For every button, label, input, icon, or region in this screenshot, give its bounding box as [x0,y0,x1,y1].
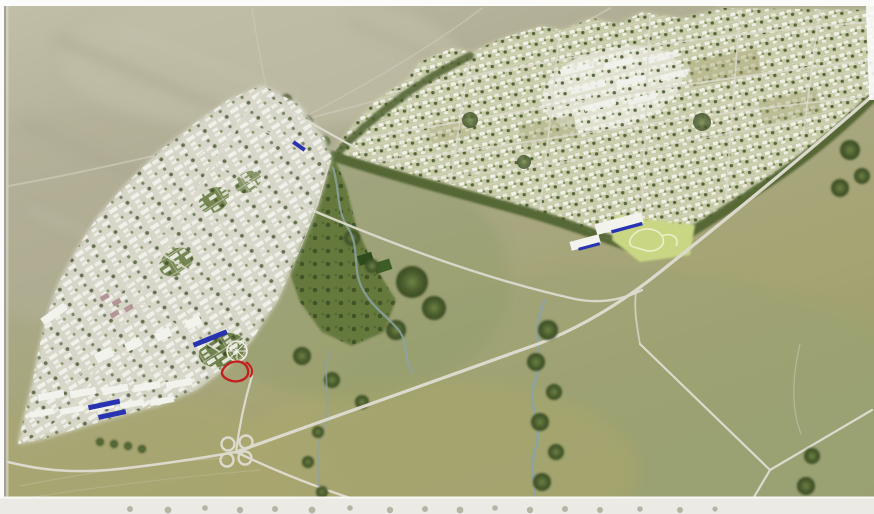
frame-gap [6,6,9,497]
frame-top [0,0,874,6]
masterplan-render [0,0,874,514]
slide-canvas [0,0,874,514]
ferris-wheel [227,341,247,361]
